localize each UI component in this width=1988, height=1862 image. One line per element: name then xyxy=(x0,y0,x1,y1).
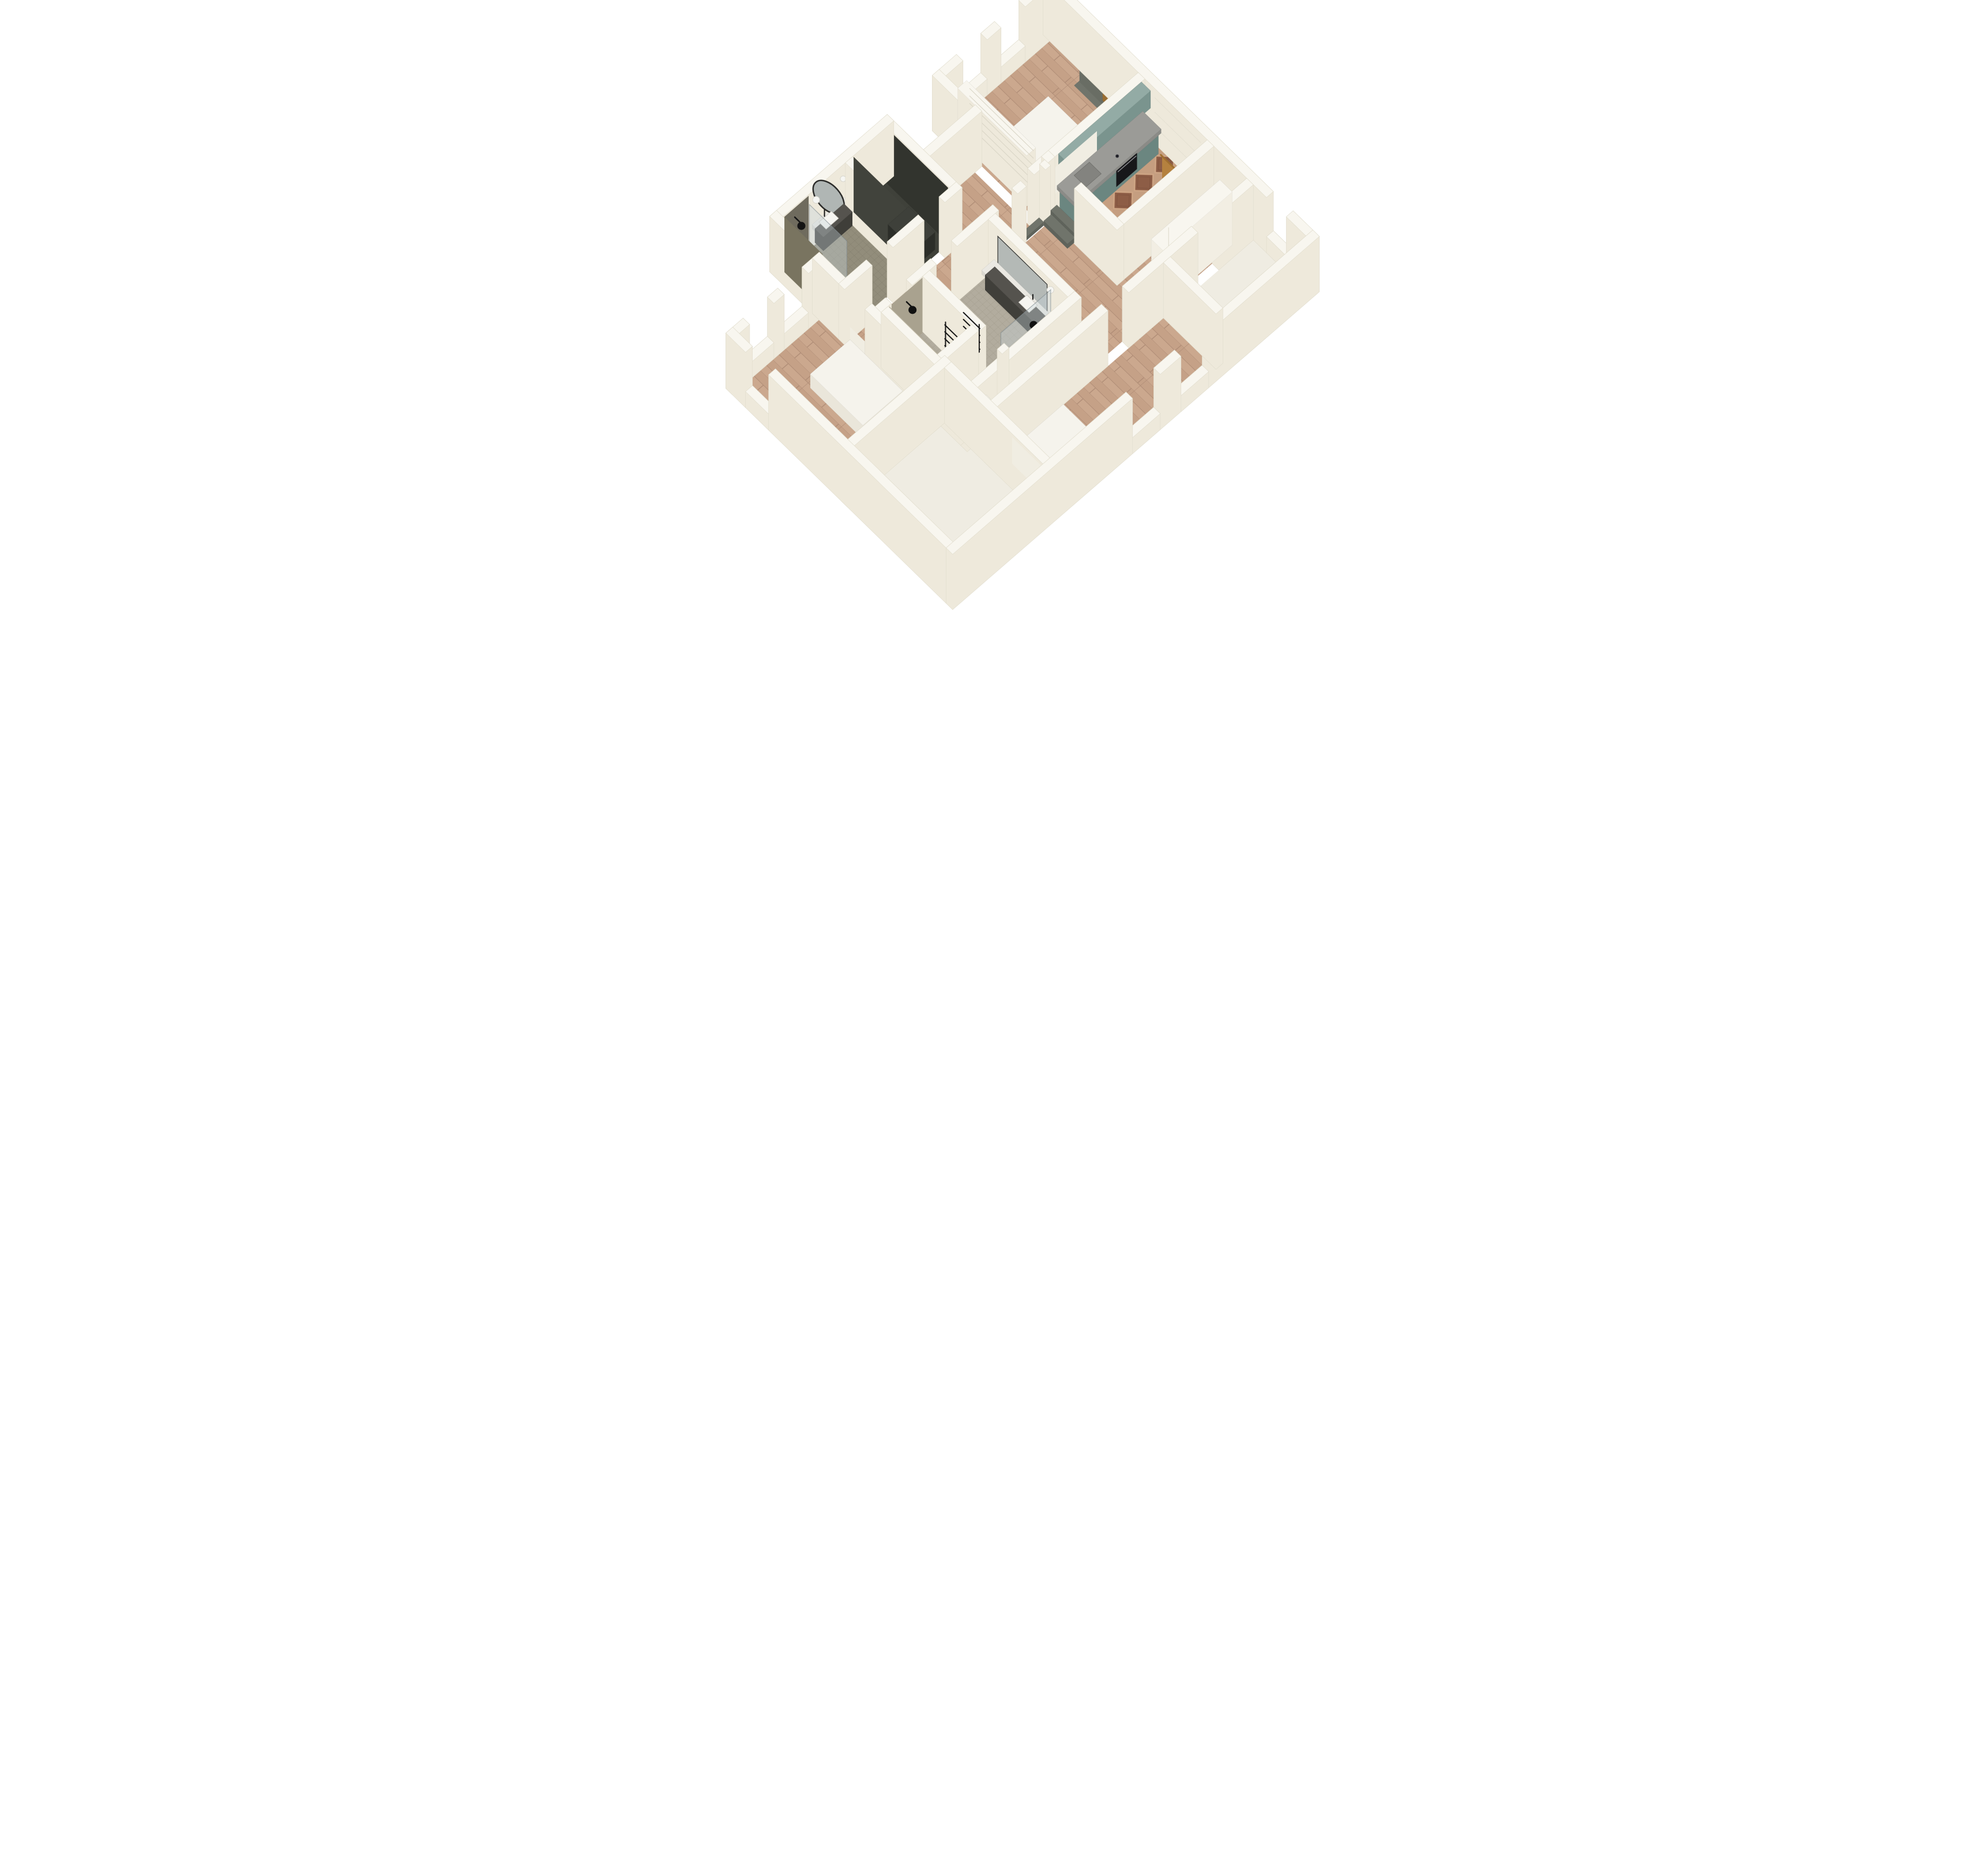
shower-1-head xyxy=(797,222,805,230)
floorplan-3d-render xyxy=(663,0,1325,621)
light-sphere-2 xyxy=(840,176,846,182)
burner xyxy=(1116,155,1119,157)
shower-2-head xyxy=(908,306,916,314)
floorplan-svg xyxy=(663,0,1325,621)
wall xyxy=(1039,160,1050,226)
light-sphere-1 xyxy=(813,197,820,204)
